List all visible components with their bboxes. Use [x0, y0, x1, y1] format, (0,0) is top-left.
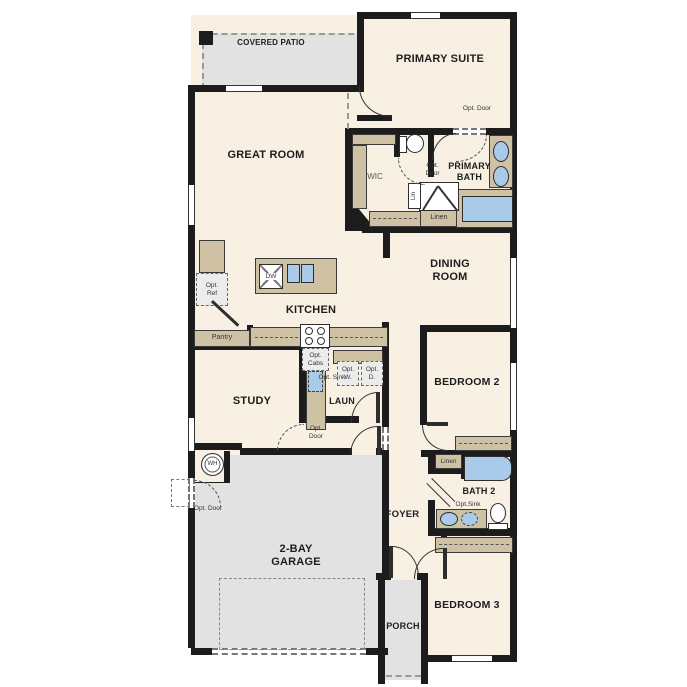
- opt-door-opening: [453, 128, 486, 135]
- linen-closet: Linen: [435, 454, 462, 469]
- window: [510, 363, 517, 430]
- wall: [428, 450, 435, 470]
- wall: [420, 332, 427, 425]
- door-leaf: [377, 426, 381, 455]
- wh-label: WH: [208, 461, 218, 468]
- linen-label: Linen: [441, 458, 457, 466]
- opt-door-label: Opt. Door: [302, 425, 330, 440]
- floor-plan: Linen Lin DW Opt. Ref Pantry Opt. Cabs O…: [0, 0, 687, 687]
- wic-shelf: [352, 134, 396, 145]
- range-icon: [300, 324, 330, 348]
- pantry-label: Pantry: [212, 334, 232, 342]
- upper-cabinet: [199, 240, 225, 273]
- wall: [357, 12, 364, 92]
- room-label-primary-suite: PRIMARY SUITE: [395, 53, 485, 66]
- opt-cabs-label: Opt. Cabs: [305, 352, 327, 367]
- window: [188, 418, 195, 451]
- patio-dashed-edge-top: [202, 33, 364, 37]
- opt-door-label: Opt. Door: [462, 105, 492, 113]
- room-label-covered-patio: COVERED PATIO: [236, 38, 306, 47]
- door-leaf: [376, 392, 380, 423]
- window: [226, 85, 262, 92]
- door-leaf: [443, 548, 447, 579]
- door-leaf: [389, 546, 393, 578]
- lin-closet: Lin: [408, 183, 421, 209]
- opt-sink-fixture: [461, 512, 478, 526]
- room-label-primary-bath: PRIMARY BATH: [444, 161, 495, 182]
- toilet-icon: [406, 134, 424, 153]
- opt-cabinets-box: Opt. Cabs: [302, 348, 329, 371]
- opt-door-label: Opt. Door: [419, 162, 446, 177]
- toilet-icon: [488, 523, 508, 530]
- room-label-bedroom3: BEDROOM 3: [427, 599, 507, 611]
- sink: [440, 512, 458, 526]
- wic-shelf: [369, 211, 421, 227]
- room-label-garage: 2-BAY GARAGE: [256, 543, 336, 569]
- linen-closet: Linen: [420, 209, 458, 227]
- linen-label: Linen: [430, 214, 447, 222]
- room-label-porch: PORCH: [383, 621, 423, 632]
- opt-d-label: Opt. D.: [364, 366, 380, 381]
- sink: [493, 166, 509, 187]
- room-label-great-room: GREAT ROOM: [226, 149, 306, 162]
- opt-door-opening: [382, 427, 389, 450]
- window: [510, 258, 517, 328]
- room-label-bedroom2: BEDROOM 2: [427, 376, 507, 388]
- bedroom2-closet-shelf: [455, 436, 512, 451]
- room-label-foyer: FOYER: [380, 509, 425, 520]
- door-leaf: [427, 422, 448, 426]
- below-garage-mask: [191, 655, 378, 687]
- porch-dashed-edge: [386, 675, 421, 679]
- kitchen-sink: [301, 264, 314, 283]
- room-label-kitchen: KITCHEN: [281, 304, 341, 317]
- water-heater-icon: WH: [201, 453, 224, 476]
- lin-label: Lin: [411, 192, 418, 200]
- bathtub: [462, 196, 513, 222]
- wall: [188, 85, 195, 648]
- wall: [345, 131, 352, 207]
- patio-post: [199, 31, 213, 45]
- opt-dryer-box: Opt. D.: [361, 361, 383, 386]
- sink: [493, 141, 509, 162]
- window: [411, 12, 440, 19]
- toilet-icon: [490, 503, 506, 523]
- bathtub: [464, 456, 512, 481]
- opt-ref-label: Opt. Ref: [200, 282, 224, 297]
- opt-sink-label: Opt.Sink: [447, 501, 489, 509]
- room-label-bath2: BATH 2: [457, 486, 501, 497]
- garage-dashed-rect: [219, 578, 365, 650]
- room-label-wic: WIC: [361, 172, 389, 181]
- hall-dashed-opening: [347, 93, 351, 129]
- window: [188, 185, 195, 225]
- opt-door-stub: [171, 479, 190, 507]
- pantry-shelf: Pantry: [194, 330, 250, 347]
- wall: [420, 325, 517, 332]
- wall: [383, 226, 390, 258]
- opt-sink-label: Opt. Sink: [318, 374, 346, 382]
- room-label-study: STUDY: [222, 395, 282, 408]
- wall: [510, 12, 517, 662]
- dishwasher: DW: [259, 264, 283, 289]
- window: [452, 655, 492, 662]
- wall: [188, 443, 242, 450]
- opt-door-label: Opt. Door: [193, 505, 223, 513]
- kitchen-sink: [287, 264, 300, 283]
- wall: [188, 85, 363, 92]
- room-label-dining-room: DINING ROOM: [415, 258, 485, 284]
- room-label-laundry: LAUN: [325, 396, 359, 407]
- dw-label: DW: [265, 273, 278, 281]
